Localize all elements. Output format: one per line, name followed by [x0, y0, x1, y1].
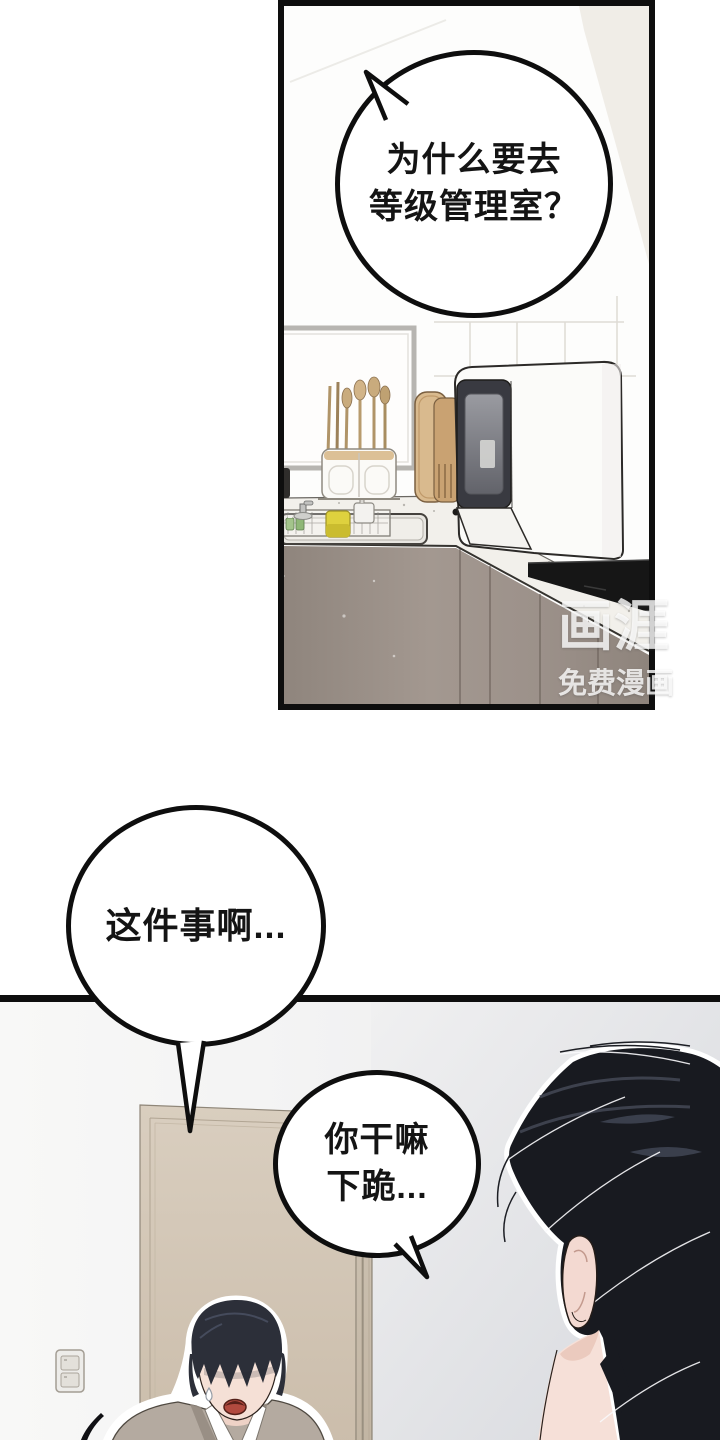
bubble3-line2: 下跪...: [325, 1164, 430, 1211]
light-switch: [56, 1350, 84, 1392]
bubble3-line1: 你干嘛: [325, 1117, 430, 1164]
dishwasher: [455, 362, 623, 559]
bubble1-line2: 等级管理室？: [369, 184, 579, 231]
bubble1-line1: 为什么要去: [369, 137, 579, 184]
bubble3-tail: [385, 1230, 435, 1282]
ear: [563, 1236, 597, 1328]
dark-bottle: [284, 468, 290, 498]
cutting-boards: [415, 392, 460, 502]
speech-bubble-this-matter: 这件事啊...: [66, 805, 326, 1047]
bubble2-text: 这件事啊...: [105, 901, 286, 951]
bubble2-tail: [168, 1035, 218, 1135]
sponge: [326, 511, 350, 537]
speech-bubble-why-kneeling: 你干嘛 下跪...: [273, 1070, 481, 1258]
comic-page: 画涯 免费漫画: [0, 0, 720, 1440]
bubble1-tail: [350, 64, 410, 124]
